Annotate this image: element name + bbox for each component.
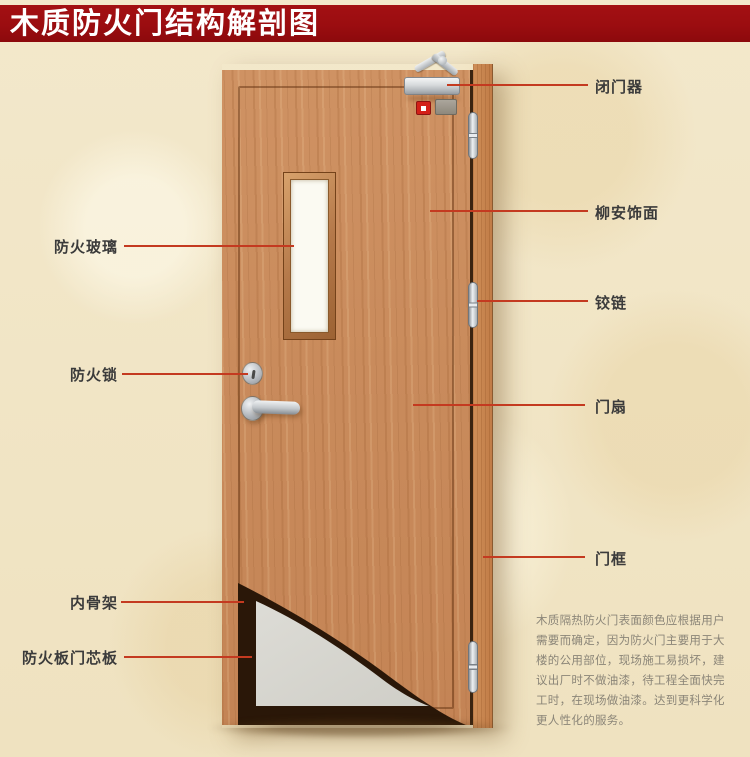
door-closer-knuckle-icon [438, 56, 447, 65]
callout-line-door-leaf [413, 404, 585, 406]
product-description: 木质隔热防火门表面颜色应根据用户 需要而确定，因为防火门主要用于大 楼的公用部位… [536, 610, 726, 730]
label-door-closer: 闭门器 [595, 76, 643, 97]
label-door-frame: 门框 [595, 548, 627, 569]
alarm-indicator-light [421, 106, 426, 111]
cutaway-section [222, 575, 470, 725]
callout-line-inner-skeleton [121, 601, 244, 603]
fire-glass [290, 179, 329, 333]
label-fire-lock: 防火锁 [0, 364, 118, 385]
door-leaf [222, 70, 470, 725]
hinge-bottom [468, 641, 478, 693]
label-inner-skeleton: 内骨架 [0, 592, 118, 613]
callout-line-door-frame [483, 556, 585, 558]
label-veneer: 柳安饰面 [595, 202, 659, 223]
door-ground-shadow [210, 718, 510, 738]
callout-line-hinge [477, 300, 588, 302]
callout-line-fire-lock [122, 373, 248, 375]
label-hinge: 铰链 [595, 292, 627, 313]
alarm-indicator [416, 101, 431, 115]
label-fire-glass: 防火玻璃 [0, 236, 118, 257]
callout-line-fire-glass [124, 245, 294, 247]
callout-line-core-board [124, 656, 252, 658]
page-background: 木质防火门结构解剖图 [0, 0, 750, 757]
page-title: 木质防火门结构解剖图 [0, 5, 320, 42]
title-banner: 木质防火门结构解剖图 [0, 5, 750, 42]
fire-door-illustration [222, 64, 493, 728]
door-closer-body [404, 77, 460, 95]
door-handle-lever [252, 400, 300, 415]
keyhole-icon [251, 370, 255, 379]
label-core-board: 防火板门芯板 [0, 647, 118, 668]
hinge-middle [468, 282, 478, 328]
callout-line-door-closer [447, 84, 588, 86]
strike-plate [435, 99, 457, 115]
vision-panel-frame [283, 172, 336, 340]
door-frame [473, 64, 493, 728]
callout-line-veneer [430, 210, 588, 212]
hinge-top [468, 112, 478, 159]
label-door-leaf: 门扇 [595, 396, 627, 417]
